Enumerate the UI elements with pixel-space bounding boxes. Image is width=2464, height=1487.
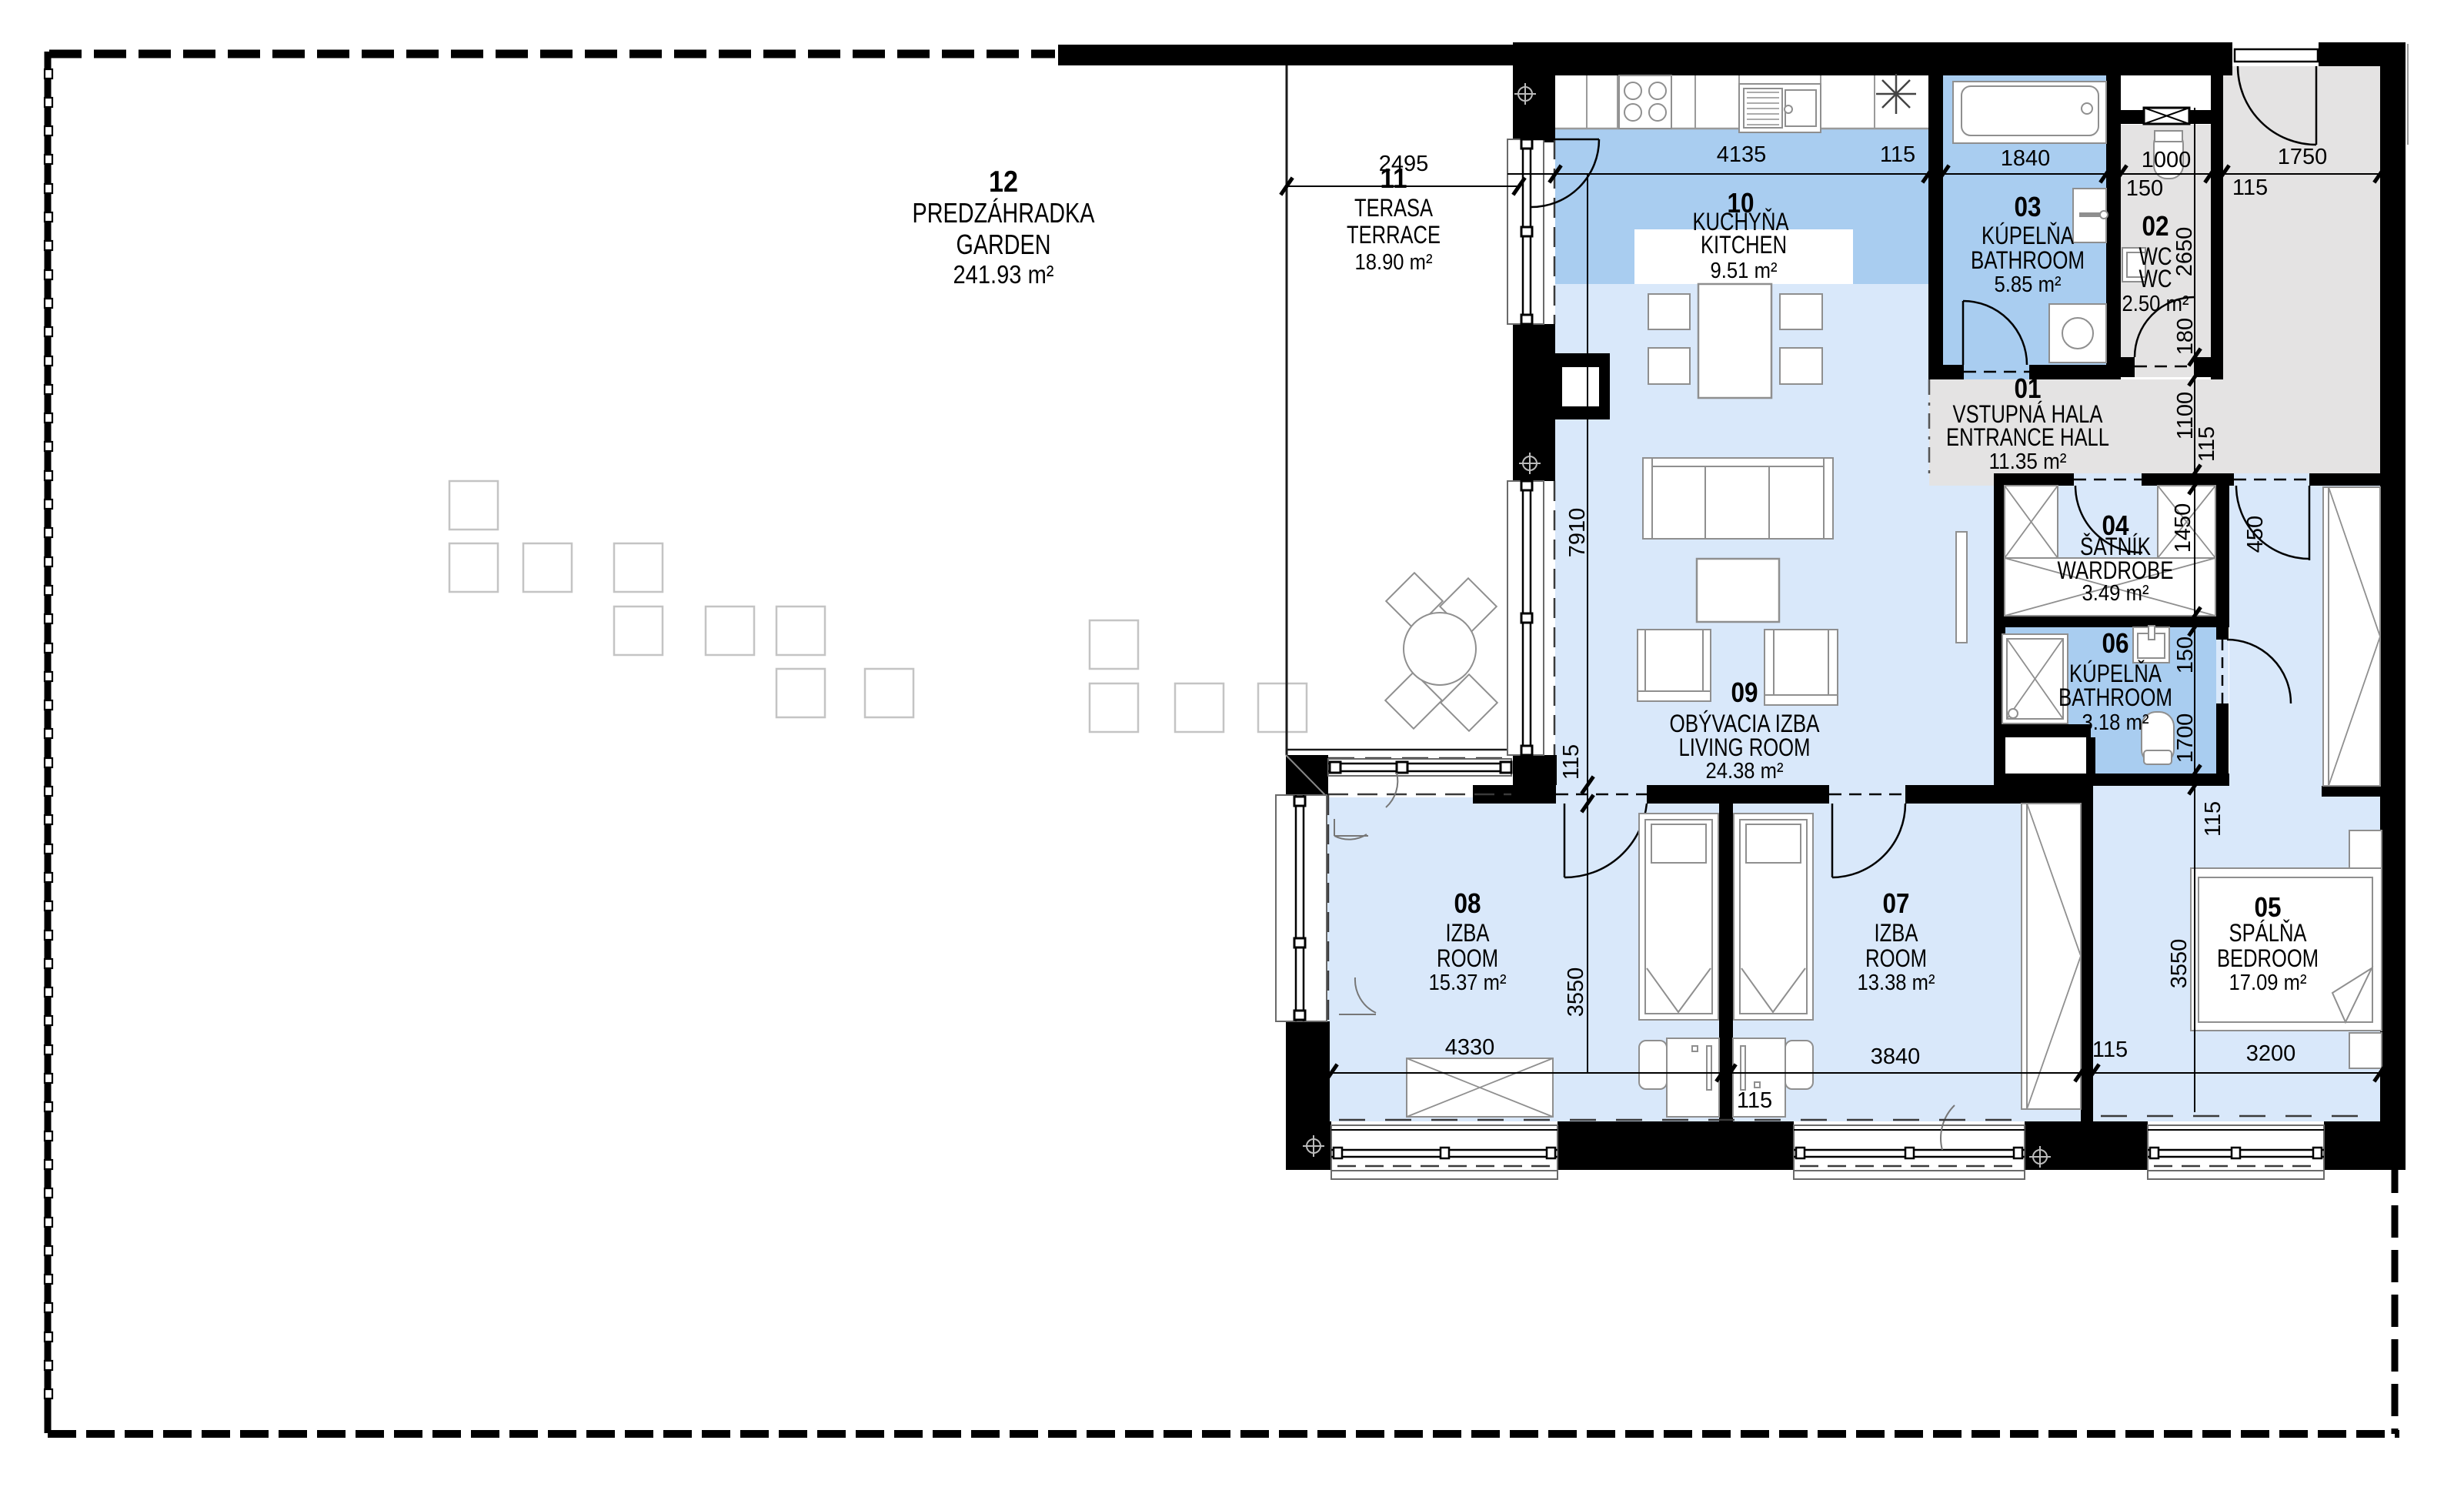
svg-text:3200: 3200 <box>2246 1041 2296 1066</box>
svg-text:12: 12 <box>989 165 1018 199</box>
svg-text:3840: 3840 <box>1871 1044 1921 1069</box>
svg-text:4330: 4330 <box>1445 1035 1495 1060</box>
svg-text:450: 450 <box>2243 516 2268 553</box>
svg-text:3550: 3550 <box>1564 967 1588 1018</box>
svg-text:2.50 m²: 2.50 m² <box>2122 292 2189 316</box>
svg-text:ENTRANCE HALL: ENTRANCE HALL <box>1946 423 2109 451</box>
svg-text:2650: 2650 <box>2172 227 2197 277</box>
svg-text:ROOM: ROOM <box>1437 944 1498 972</box>
svg-text:WARDROBE: WARDROBE <box>2058 556 2174 584</box>
svg-text:115: 115 <box>2195 426 2219 462</box>
svg-text:08: 08 <box>1454 887 1481 919</box>
svg-text:150: 150 <box>2173 637 2198 673</box>
svg-text:5.85 m²: 5.85 m² <box>1995 272 2062 297</box>
svg-text:115: 115 <box>2092 1038 2128 1062</box>
svg-text:15.37 m²: 15.37 m² <box>1429 971 1507 995</box>
svg-text:BATHROOM: BATHROOM <box>1971 246 2085 274</box>
svg-text:SPÁLŇA: SPÁLŇA <box>2229 919 2308 947</box>
svg-text:11.35 m²: 11.35 m² <box>1989 449 2067 474</box>
svg-text:LIVING ROOM: LIVING ROOM <box>1679 733 1811 761</box>
svg-text:IZBA: IZBA <box>1446 919 1491 947</box>
svg-text:TERRACE: TERRACE <box>1347 221 1441 249</box>
svg-text:9.51 m²: 9.51 m² <box>1711 259 1778 283</box>
svg-text:180: 180 <box>2173 318 2198 355</box>
svg-text:KÚPELŇA: KÚPELŇA <box>1982 222 2075 249</box>
svg-text:1000: 1000 <box>2142 148 2192 172</box>
svg-text:150: 150 <box>2126 176 2163 201</box>
svg-text:7910: 7910 <box>1565 508 1590 558</box>
svg-text:115: 115 <box>1559 744 1584 780</box>
svg-text:01: 01 <box>2015 373 2042 404</box>
svg-text:3550: 3550 <box>2167 939 2192 989</box>
svg-text:KITCHEN: KITCHEN <box>1701 231 1787 259</box>
svg-text:06: 06 <box>2102 627 2129 659</box>
svg-text:02: 02 <box>2142 210 2169 242</box>
svg-text:IZBA: IZBA <box>1875 919 1919 947</box>
svg-text:241.93 m²: 241.93 m² <box>953 260 1054 289</box>
svg-text:WC: WC <box>2139 265 2172 292</box>
svg-text:05: 05 <box>2255 891 2282 923</box>
svg-text:3.49 m²: 3.49 m² <box>2082 581 2149 606</box>
svg-text:1750: 1750 <box>2278 145 2328 169</box>
svg-text:115: 115 <box>1880 142 1915 167</box>
svg-text:07: 07 <box>1883 887 1910 919</box>
svg-text:115: 115 <box>1737 1088 1772 1113</box>
svg-text:18.90 m²: 18.90 m² <box>1355 250 1433 275</box>
svg-text:03: 03 <box>2015 191 2042 222</box>
svg-text:13.38 m²: 13.38 m² <box>1858 971 1935 995</box>
svg-text:BATHROOM: BATHROOM <box>2058 683 2172 711</box>
svg-text:1450: 1450 <box>2171 503 2195 553</box>
svg-text:BEDROOM: BEDROOM <box>2217 944 2319 972</box>
svg-text:11: 11 <box>1381 162 1407 194</box>
svg-text:1840: 1840 <box>2001 146 2051 171</box>
svg-text:115: 115 <box>2201 801 2225 837</box>
svg-text:4135: 4135 <box>1717 142 1767 167</box>
svg-text:3.18 m²: 3.18 m² <box>2082 710 2149 735</box>
svg-text:ROOM: ROOM <box>1865 944 1927 972</box>
svg-text:17.09 m²: 17.09 m² <box>2229 971 2307 995</box>
svg-text:1700: 1700 <box>2173 713 2198 764</box>
svg-text:TERASA: TERASA <box>1354 194 1434 222</box>
svg-text:09: 09 <box>1731 677 1758 708</box>
svg-text:PREDZÁHRADKA: PREDZÁHRADKA <box>913 197 1095 229</box>
svg-text:24.38 m²: 24.38 m² <box>1706 759 1784 784</box>
svg-text:GARDEN: GARDEN <box>957 229 1051 260</box>
svg-text:115: 115 <box>2232 175 2268 200</box>
